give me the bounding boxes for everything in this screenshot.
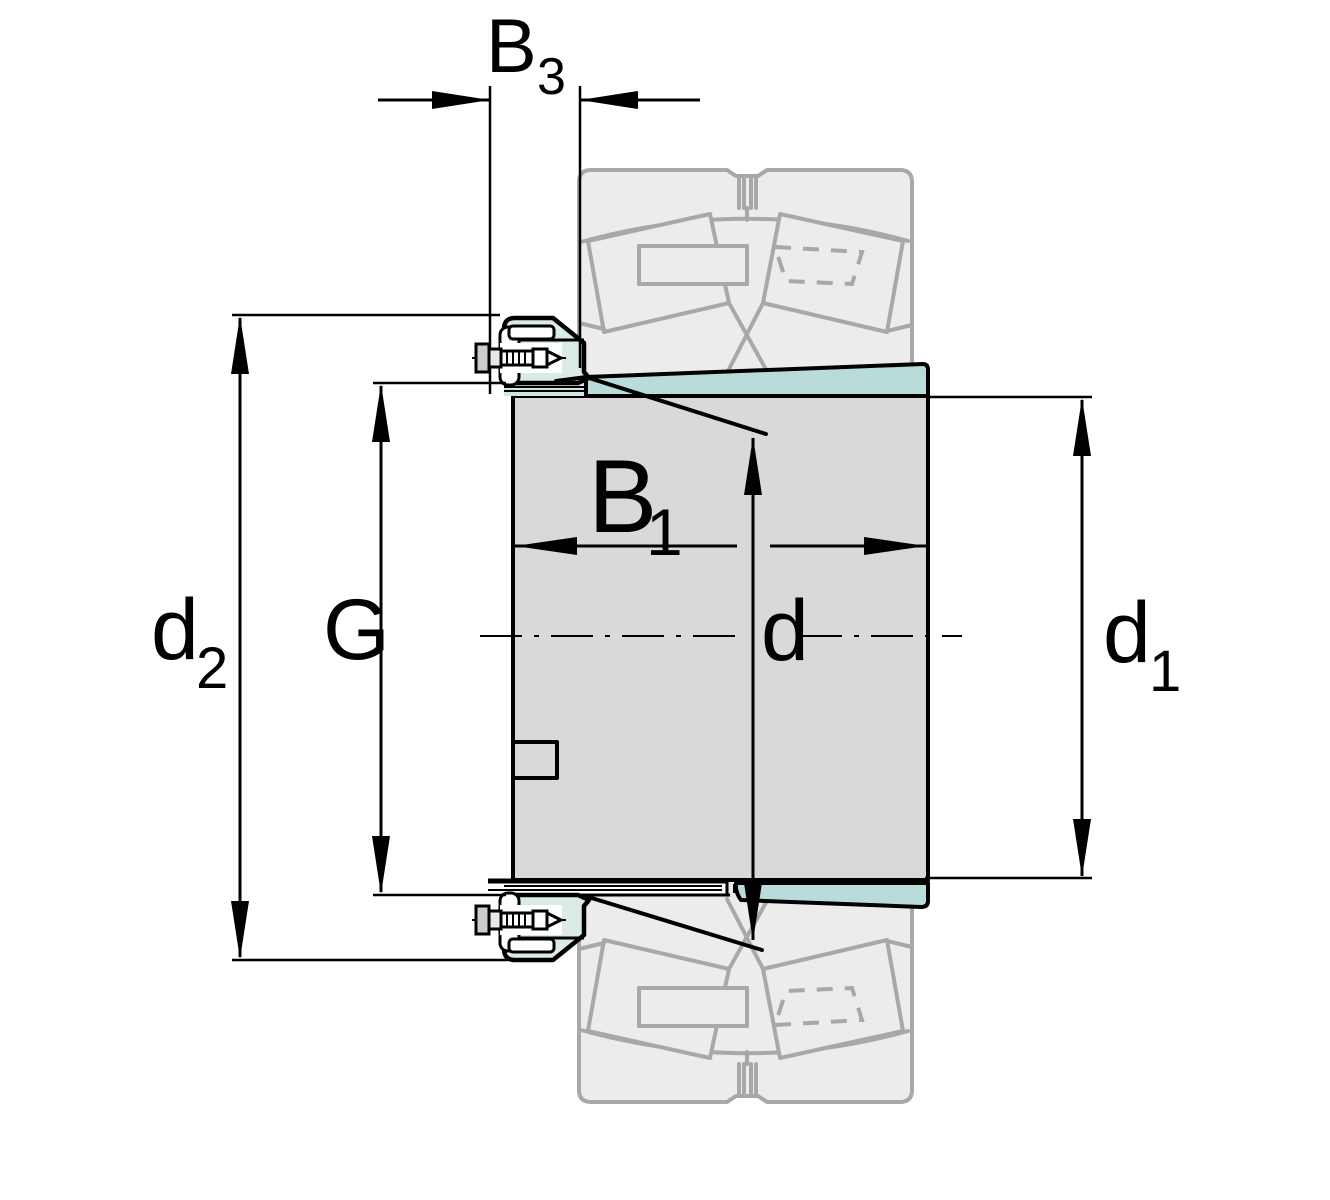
set-screw-top-flange (476, 344, 489, 372)
d2-arrow-down (231, 901, 249, 959)
dimension-label-g: G (323, 582, 390, 678)
dimension-label-d1: d1 (1103, 585, 1181, 704)
b3-arrow-left (432, 91, 490, 109)
g-arrow-up (372, 384, 390, 442)
set-screw-top-head (489, 349, 501, 367)
set-screw-bottom-flange (476, 906, 489, 934)
g-arrow-down (372, 836, 390, 894)
drawing-canvas: B3 d2 G B1 (0, 0, 1330, 1200)
dimension-d1: d1 (925, 397, 1181, 878)
sleeve-body (513, 396, 928, 880)
keyway-notch (513, 742, 557, 778)
dimension-label-d2: d2 (151, 582, 228, 701)
dimension-label-d: d (761, 583, 809, 679)
bearing-ghost-top (579, 170, 912, 395)
d2-arrow-up (231, 316, 249, 374)
set-screw-bottom-head (489, 911, 501, 929)
technical-drawing: B3 d2 G B1 (0, 0, 1330, 1200)
b3-arrow-right (580, 91, 638, 109)
d1-arrow-up (1073, 398, 1091, 456)
locknut-bottom (472, 893, 589, 960)
dimension-g: G (323, 383, 506, 895)
d1-arrow-down (1073, 819, 1091, 877)
dimension-label-b3: B3 (486, 4, 566, 106)
